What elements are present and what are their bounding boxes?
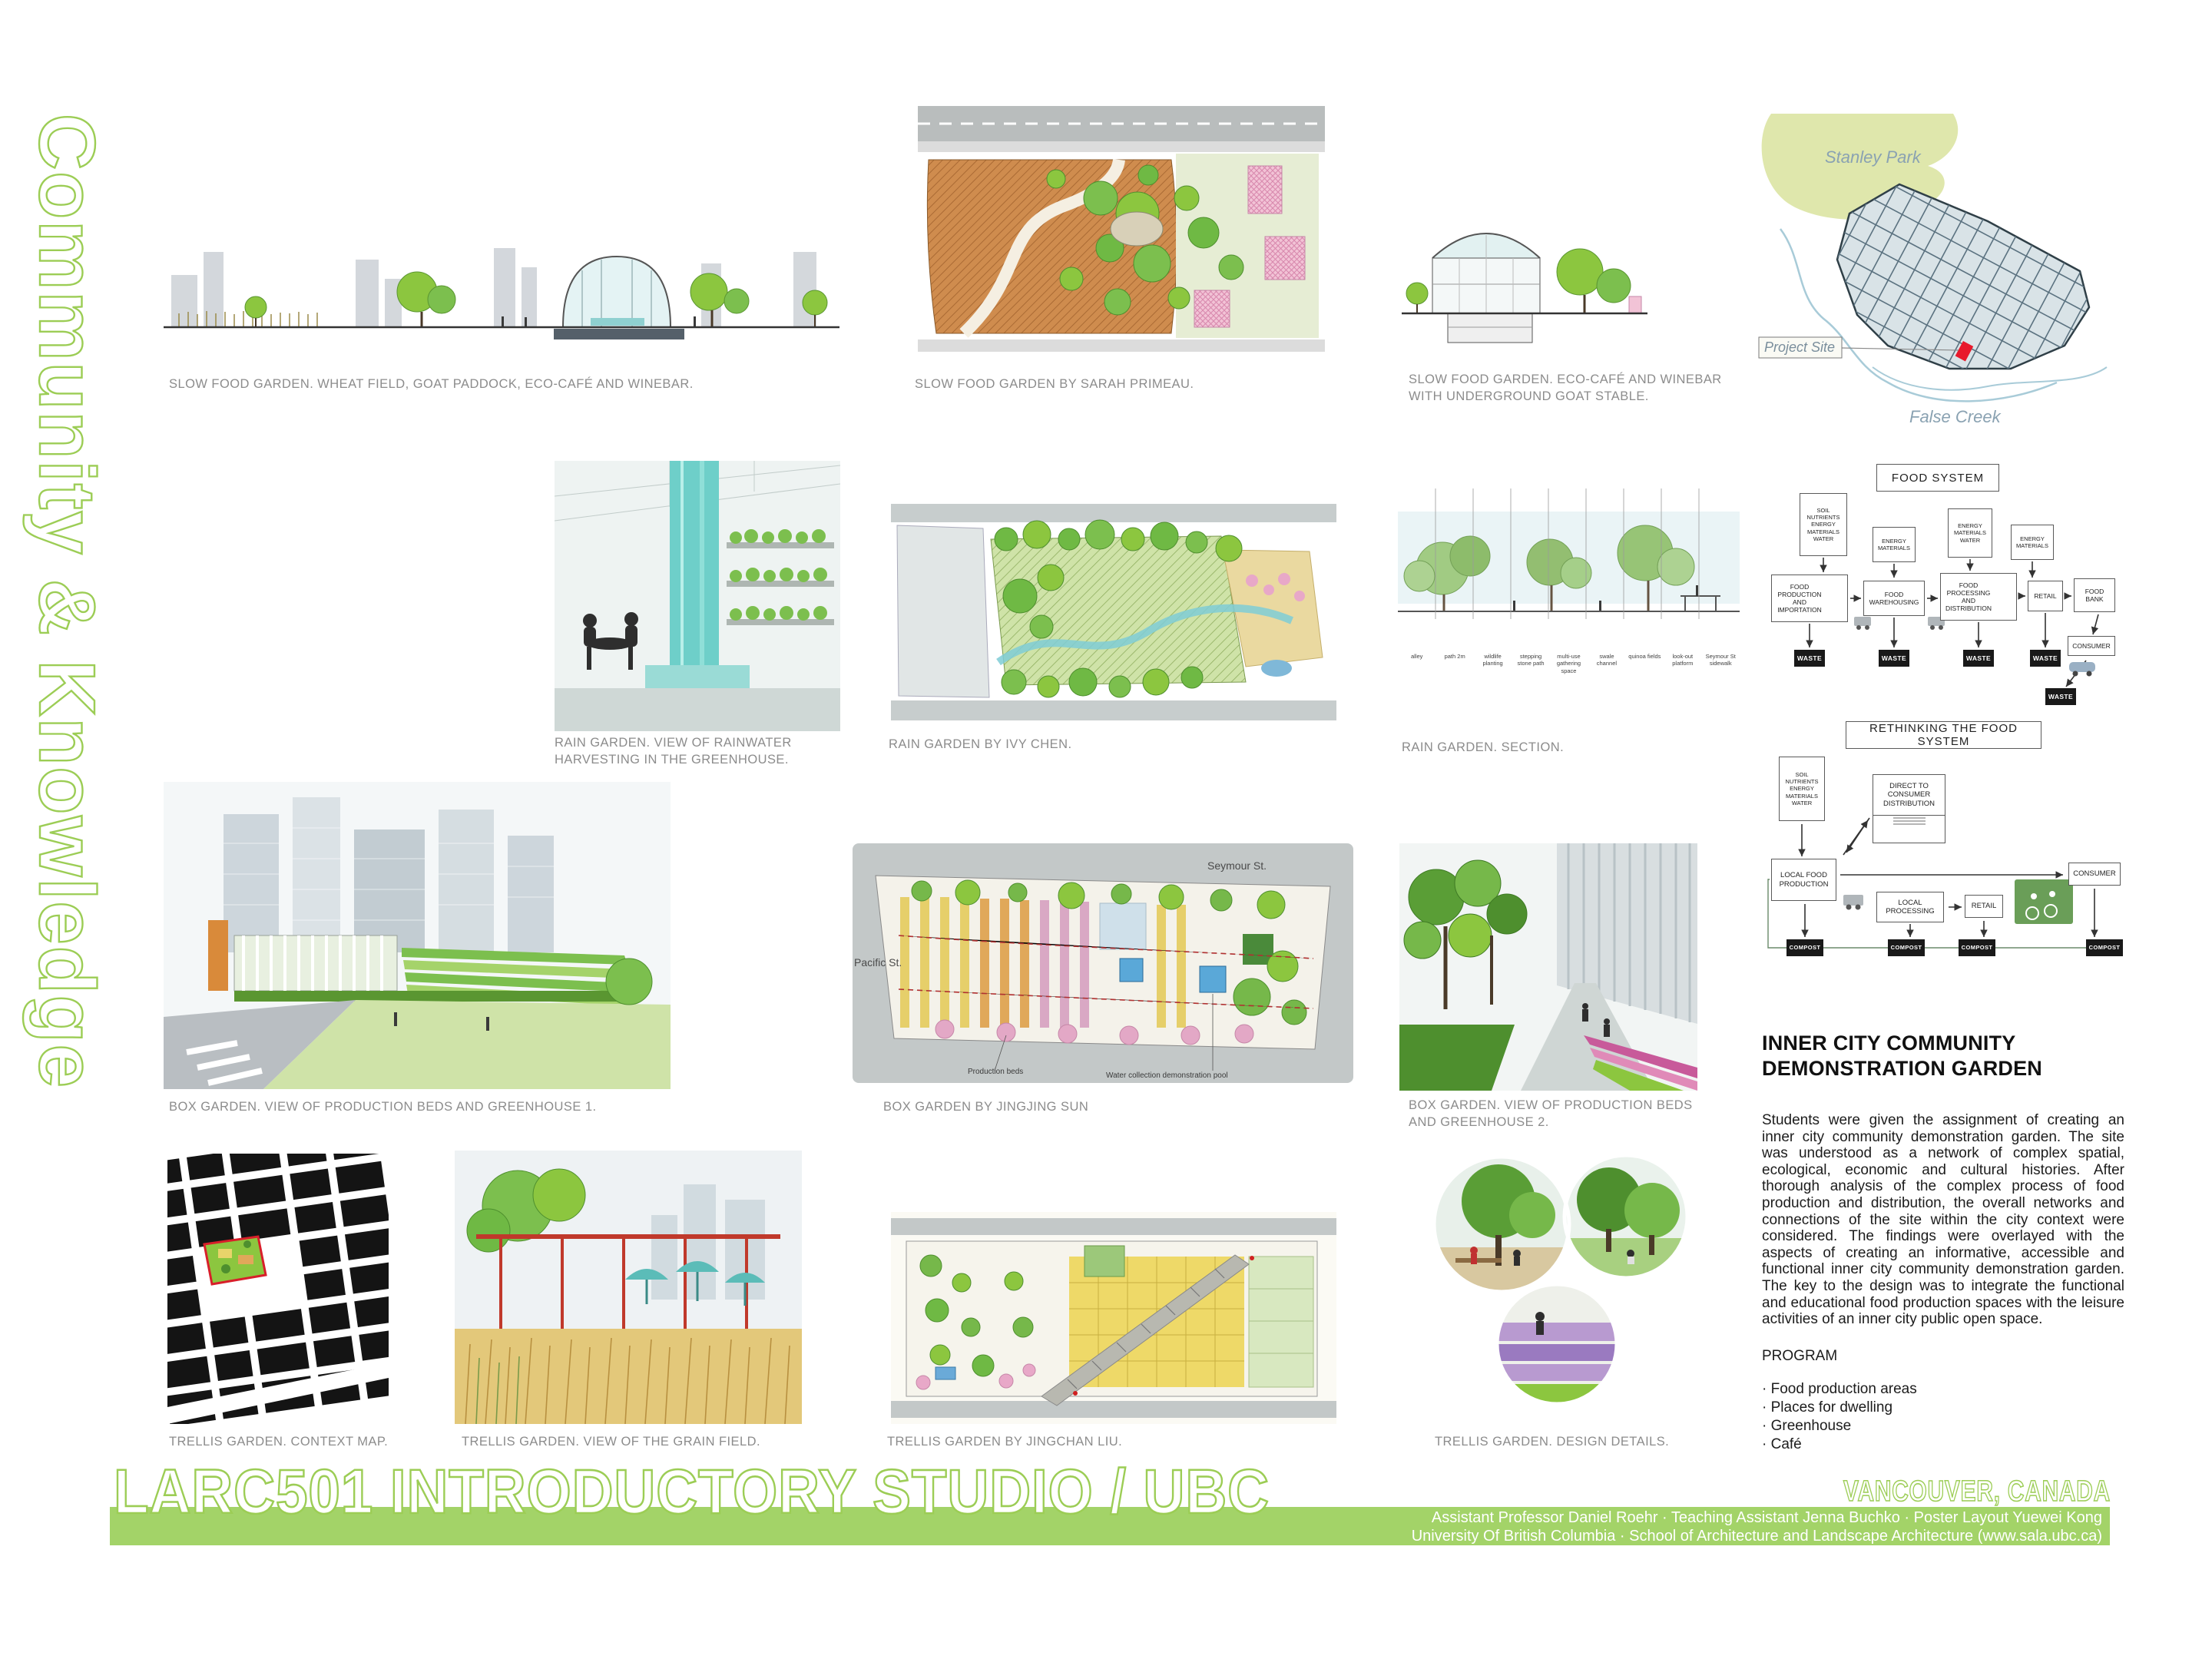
rain-garden-greenhouse-view bbox=[555, 461, 840, 731]
rethinking-arrows bbox=[1757, 717, 2126, 972]
program-item: Café bbox=[1762, 1435, 2124, 1454]
stage-box: FOOD WAREHOUSING bbox=[1863, 581, 1925, 616]
waste-box: WASTE bbox=[2045, 688, 2076, 705]
article-heading: INNER CITY COMMUNITY DEMONSTRATION GARDE… bbox=[1762, 1031, 2124, 1081]
trellis-garden-plan bbox=[891, 1212, 1336, 1424]
pond bbox=[1261, 660, 1292, 677]
article-body: Students were given the assignment of cr… bbox=[1762, 1112, 2124, 1328]
green-beds bbox=[1249, 1257, 1313, 1387]
program-item: Places for dwelling bbox=[1762, 1399, 2124, 1417]
rain-garden-section: alley path 2m wildlife planting stepping… bbox=[1398, 488, 1740, 719]
local-food-production-box: LOCAL FOOD PRODUCTION bbox=[1771, 859, 1836, 901]
tree-icon bbox=[606, 959, 652, 1005]
pool bbox=[1120, 959, 1143, 982]
stage-box: RETAIL bbox=[2028, 581, 2063, 611]
waste-box: WASTE bbox=[1963, 650, 1994, 667]
caption-slow-food-2: SLOW FOOD GARDEN BY SARAH PRIMEAU. bbox=[915, 376, 1194, 392]
car-icon bbox=[2069, 662, 2095, 677]
underground-goat-stable bbox=[1448, 313, 1532, 343]
section-label: look-out platform bbox=[1664, 651, 1701, 674]
pool-label: Water collection demonstration pool bbox=[1106, 1071, 1228, 1080]
caption-box-3: BOX GARDEN. VIEW OF PRODUCTION BEDS AND … bbox=[1409, 1097, 1693, 1131]
caption-box-2: BOX GARDEN BY JINGJING SUN bbox=[883, 1098, 1088, 1115]
section-label: swale channel bbox=[1588, 651, 1625, 674]
compost-box: COMPOST bbox=[1888, 939, 1925, 956]
caption-rain-3: RAIN GARDEN. SECTION. bbox=[1402, 739, 1564, 756]
caption-rain-1: RAIN GARDEN. VIEW OF RAINWATER HARVESTIN… bbox=[555, 734, 869, 769]
orange-structure bbox=[208, 920, 228, 991]
street-label-left: Pacific St. bbox=[854, 956, 902, 969]
stage-box: FOOD PROCESSING AND DISTRIBUTION bbox=[1940, 573, 2017, 621]
local-processing-box: LOCAL PROCESSING bbox=[1876, 892, 1944, 922]
vancouver-context-map: Stanley Park Project bbox=[1757, 114, 2126, 436]
section-label: multi-use gathering space bbox=[1550, 651, 1588, 674]
program-heading: PROGRAM bbox=[1762, 1348, 2124, 1365]
retail-box: RETAIL bbox=[1965, 895, 2003, 918]
goat-paddock bbox=[1111, 212, 1163, 246]
rethinking-food-system-diagram: RETHINKING THE FOOD SYSTEM SOIL NUTRIENT… bbox=[1757, 717, 2126, 972]
vertical-title: Community & Knowledge bbox=[22, 108, 137, 1183]
section-label: stepping stone path bbox=[1512, 651, 1549, 674]
stage-box: FOOD BANK bbox=[2074, 578, 2115, 612]
food-system-diagram: FOOD SYSTEM SOIL NUTRIENTS ENERGY MATERI… bbox=[1757, 459, 2126, 714]
input-box: ENERGY MATERIALS WATER bbox=[1948, 508, 1992, 558]
caption-trellis-3: TRELLIS GARDEN BY JINGCHAN LIU. bbox=[887, 1433, 1122, 1450]
vertical-title-text: Community & Knowledge bbox=[23, 114, 111, 1089]
rainwater-wall bbox=[670, 461, 719, 665]
downtown-peninsula bbox=[1837, 184, 2089, 369]
section-label: wildlife planting bbox=[1474, 651, 1512, 674]
section-label: Seymour St sidewalk bbox=[1702, 651, 1740, 674]
poster-root: Community & Knowledge bbox=[0, 0, 2212, 1659]
false-creek-label: False Creek bbox=[1909, 407, 2002, 426]
waste-box: WASTE bbox=[1794, 650, 1825, 667]
compost-box: COMPOST bbox=[1959, 939, 1995, 956]
box-garden-plan: Seymour St. Pacific St. Production beds … bbox=[853, 843, 1353, 1083]
caption-trellis-2: TRELLIS GARDEN. VIEW OF THE GRAIN FIELD. bbox=[462, 1433, 760, 1450]
waste-box: WASTE bbox=[1879, 650, 1909, 667]
green-square bbox=[1084, 1246, 1124, 1277]
waste-box: WASTE bbox=[2030, 650, 2061, 667]
caption-trellis-4: TRELLIS GARDEN. DESIGN DETAILS. bbox=[1435, 1433, 1669, 1450]
consumer-box: CONSUMER bbox=[2068, 863, 2121, 886]
main-title: LARC501 INTRODUCTORY STUDIO / UBC bbox=[108, 1452, 1298, 1536]
slow-food-section-sketch bbox=[164, 206, 839, 358]
rethinking-title: RETHINKING THE FOOD SYSTEM bbox=[1846, 721, 2041, 749]
section-label: alley bbox=[1398, 651, 1435, 674]
caption-box-1: BOX GARDEN. VIEW OF PRODUCTION BEDS AND … bbox=[169, 1098, 597, 1115]
plaza bbox=[897, 525, 989, 697]
compost-box: COMPOST bbox=[2086, 939, 2123, 956]
site-plan-inset bbox=[204, 1237, 266, 1284]
truck-icon bbox=[1843, 895, 1863, 910]
trellis-design-details bbox=[1425, 1146, 1697, 1424]
section-labels: alley path 2m wildlife planting stepping… bbox=[1398, 651, 1740, 674]
program-list: Food production areas Places for dwellin… bbox=[1762, 1380, 2124, 1454]
stanley-park-label: Stanley Park bbox=[1825, 147, 1922, 167]
location-title-text: VANCOUVER, CANADA bbox=[1843, 1475, 2111, 1508]
input-box: ENERGY MATERIALS bbox=[2011, 525, 2054, 560]
input-box: ENERGY MATERIALS bbox=[1873, 527, 1916, 562]
direct-to-consumer-box: DIRECT TO CONSUMER DISTRIBUTION bbox=[1873, 774, 1945, 816]
box-garden-view-1 bbox=[164, 782, 671, 1089]
demonstration-pool bbox=[1200, 966, 1226, 992]
street-label-top: Seymour St. bbox=[1207, 859, 1267, 872]
input-box: SOIL NUTRIENTS ENERGY MATERIALS WATER bbox=[1779, 757, 1825, 821]
trellis-context-map bbox=[167, 1154, 389, 1424]
article-heading-line2: DEMONSTRATION GARDEN bbox=[1762, 1056, 2124, 1081]
reflecting-pool bbox=[645, 665, 750, 688]
section-label: quinoa fields bbox=[1626, 651, 1664, 674]
cyclists-photo bbox=[2015, 879, 2073, 924]
caption-rain-2: RAIN GARDEN BY IVY CHEN. bbox=[889, 736, 1072, 753]
box-garden-view-2 bbox=[1399, 843, 1697, 1091]
trellis-grain-field-view bbox=[455, 1151, 802, 1424]
food-system-title: FOOD SYSTEM bbox=[1876, 464, 1999, 492]
consumer-box: CONSUMER bbox=[2068, 636, 2115, 656]
water-feature bbox=[935, 1367, 955, 1379]
underground-stable bbox=[554, 329, 684, 339]
article-column: INNER CITY COMMUNITY DEMONSTRATION GARDE… bbox=[1762, 1031, 2124, 1454]
hedge bbox=[234, 991, 634, 1002]
section-label: path 2m bbox=[1435, 651, 1473, 674]
greenhouse-block bbox=[234, 935, 397, 991]
slow-food-plan bbox=[918, 106, 1325, 352]
detail-circle-dwelling bbox=[1425, 1146, 1578, 1300]
caption-trellis-1: TRELLIS GARDEN. CONTEXT MAP. bbox=[169, 1433, 388, 1450]
input-box: SOIL NUTRIENTS ENERGY MATERIALS WATER bbox=[1800, 493, 1847, 556]
program-item: Greenhouse bbox=[1762, 1417, 2124, 1435]
main-title-text: LARC501 INTRODUCTORY STUDIO / UBC bbox=[114, 1457, 1270, 1527]
rain-garden-plan bbox=[891, 504, 1336, 720]
compost-box: COMPOST bbox=[1786, 939, 1823, 956]
caption-slow-food-1: SLOW FOOD GARDEN. WHEAT FIELD, GOAT PADD… bbox=[169, 376, 694, 392]
stage-box: FOOD PRODUCTION AND IMPORTATION bbox=[1771, 575, 1848, 622]
greenhouse-dome bbox=[563, 257, 671, 327]
article-heading-line1: INNER CITY COMMUNITY bbox=[1762, 1031, 2124, 1056]
slow-food-section-2 bbox=[1402, 198, 1647, 356]
direct-subtext-placeholder bbox=[1873, 816, 1945, 843]
program-item: Food production areas bbox=[1762, 1380, 2124, 1399]
project-site-label: Project Site bbox=[1764, 339, 1835, 355]
location-title: VANCOUVER, CANADA bbox=[1836, 1469, 2120, 1508]
caption-slow-food-3: SLOW FOOD GARDEN. ECO-CAFÉ AND WINEBAR W… bbox=[1409, 371, 1739, 406]
